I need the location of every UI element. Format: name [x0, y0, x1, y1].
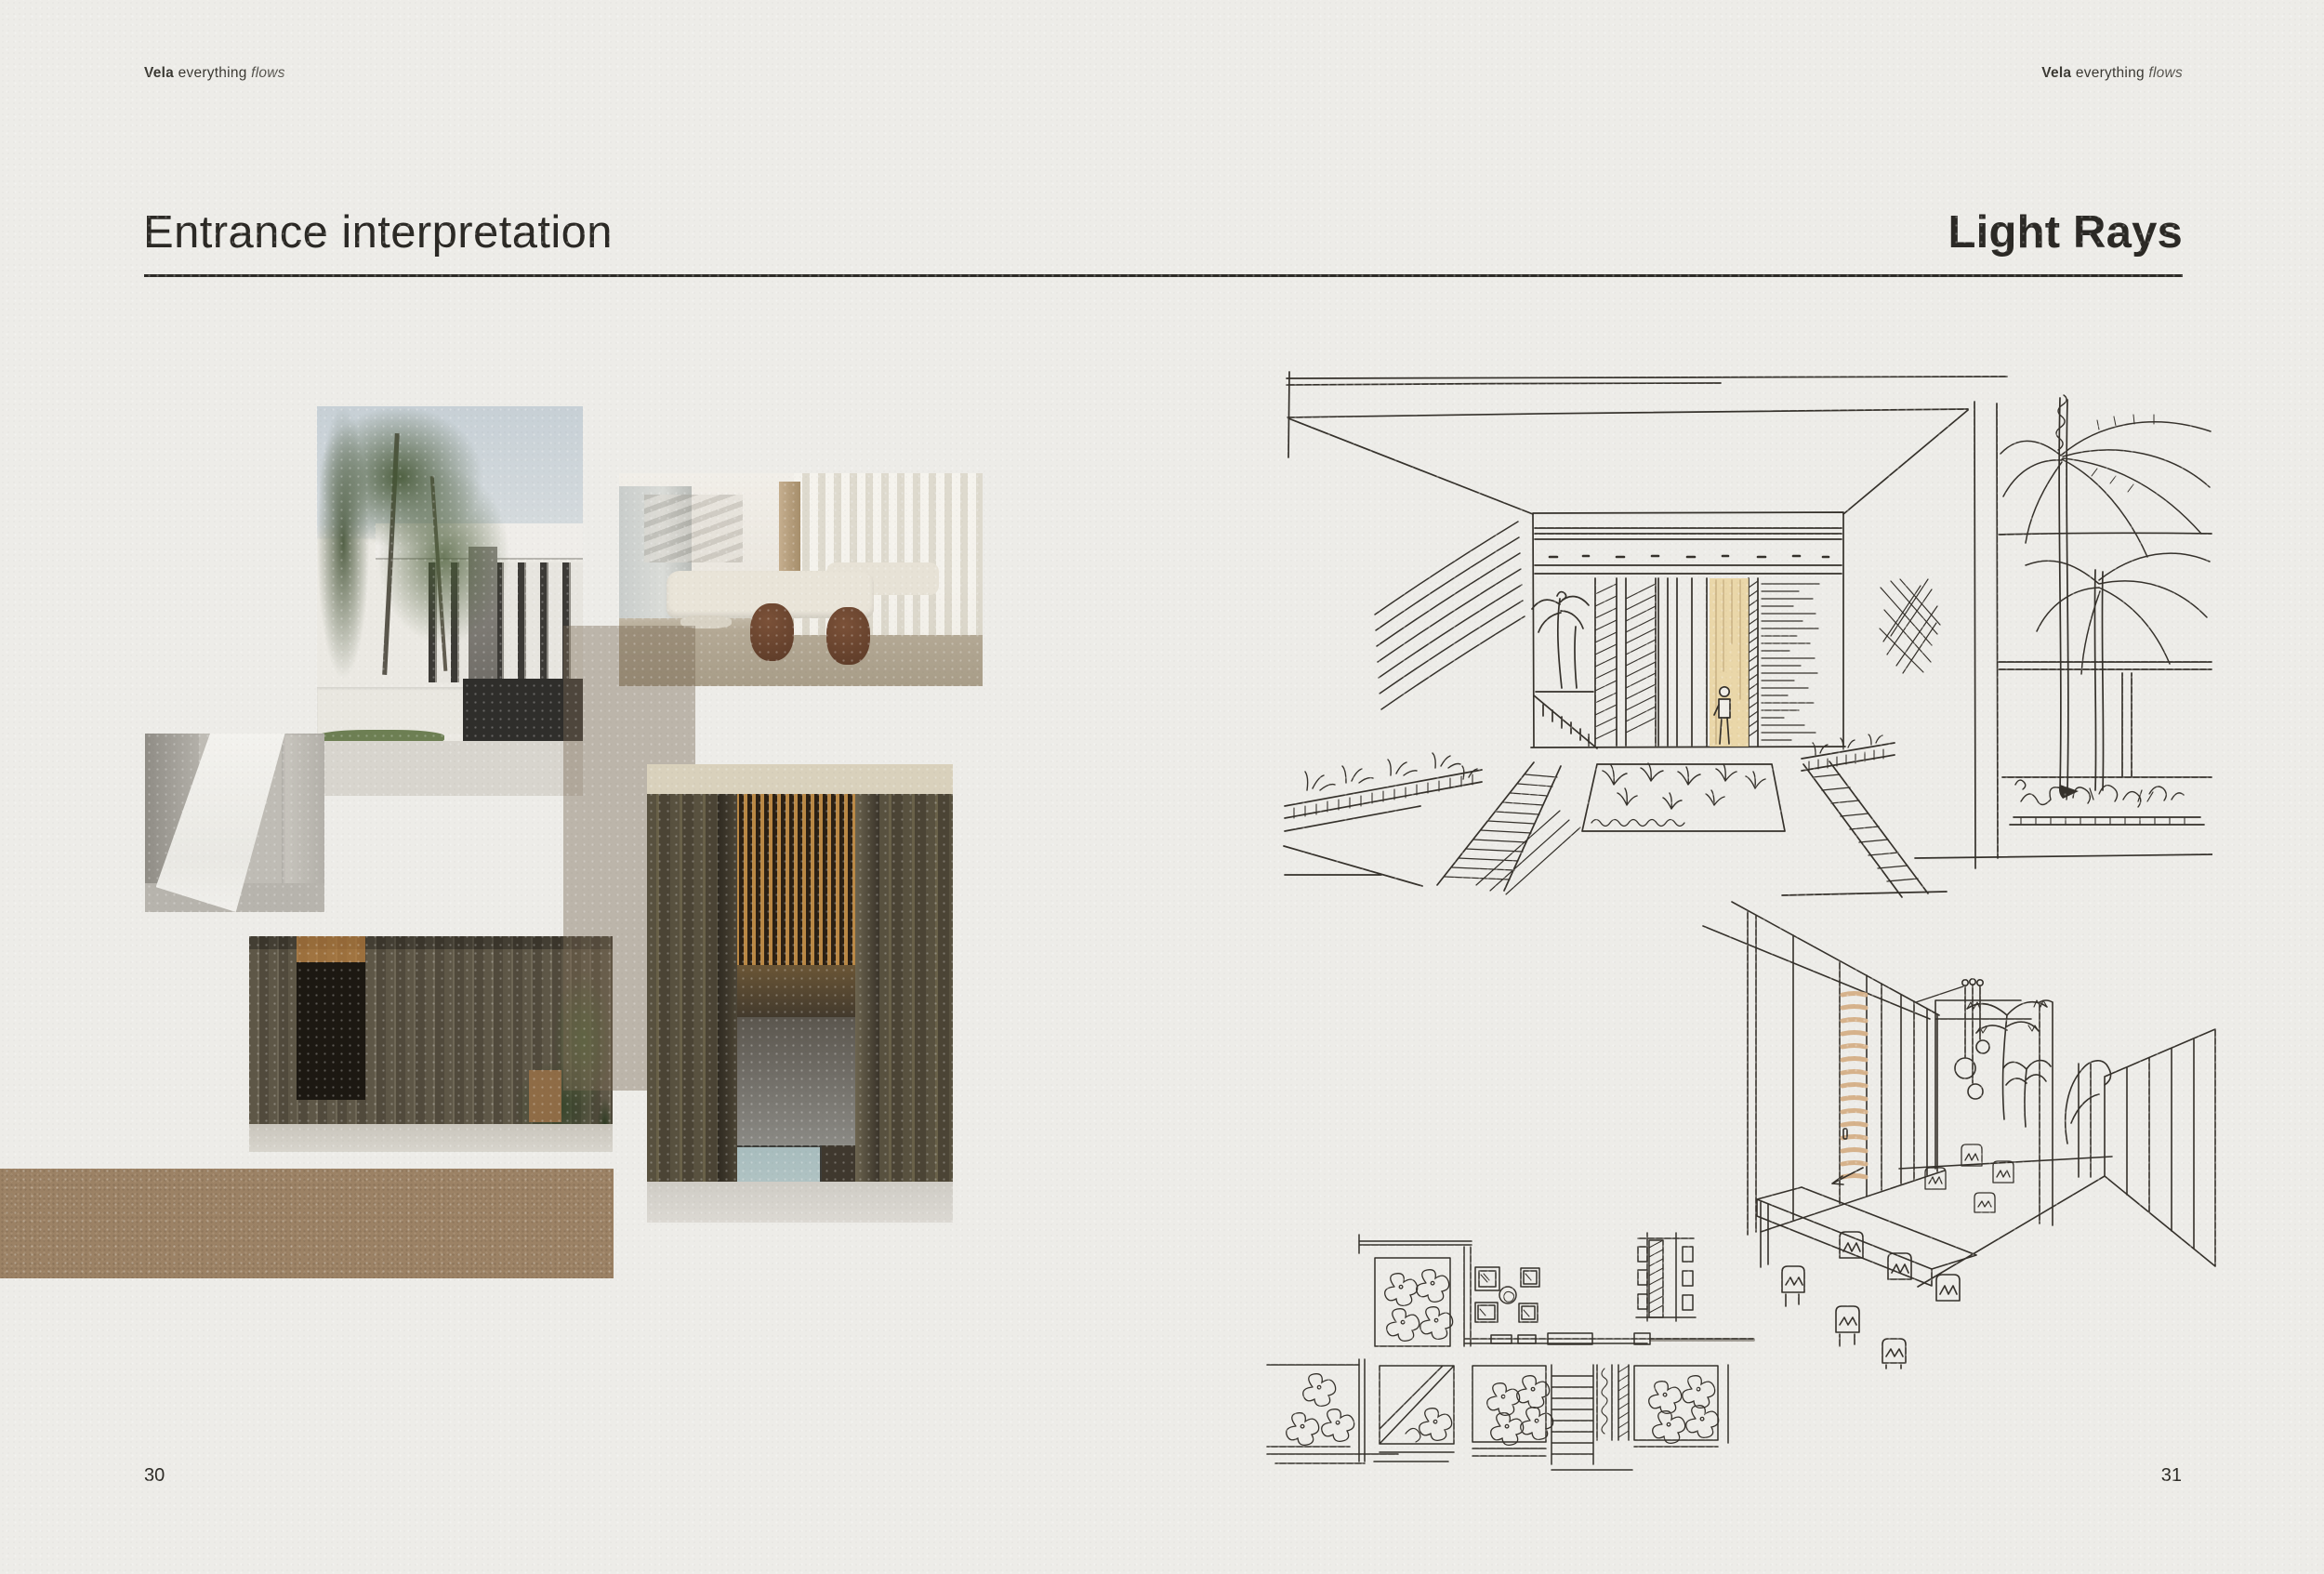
sketch-interior-perspective	[1699, 900, 2234, 1369]
pivot-door-leaf-right	[855, 794, 879, 1199]
photo-villa-palms	[317, 406, 583, 796]
heading-rule	[144, 274, 2183, 277]
photo-pivot-door	[647, 764, 953, 1223]
lounge-stair	[644, 495, 743, 562]
timber-forecourt	[249, 1124, 613, 1152]
timber-door-opening	[297, 936, 365, 1100]
lounge-barrel-table	[750, 603, 794, 661]
photo-concrete-light	[145, 734, 324, 912]
page-title-left: Entrance interpretation	[143, 210, 613, 256]
logo-word: everything	[178, 65, 247, 81]
palm-canopy	[317, 406, 535, 679]
villa-paving	[317, 741, 583, 796]
logo-word: everything	[2076, 65, 2145, 81]
timber-planter-box	[529, 1070, 561, 1122]
sketch-floor-plan	[1257, 1229, 1777, 1475]
logo-brand: Vela	[144, 65, 174, 81]
logo-word-italic: flows	[2148, 65, 2183, 81]
logo-brand: Vela	[2041, 65, 2071, 81]
villa-boundary-wall	[317, 687, 477, 734]
sketch-entrance-perspective	[1281, 364, 2212, 899]
pivot-interior	[735, 1017, 864, 1145]
pivot-entry-corridor	[735, 794, 864, 1223]
pivot-fascia	[647, 764, 953, 794]
brochure-spread: Vela everything flows Vela everything fl…	[0, 0, 2324, 1574]
pivot-slatted-ceiling	[735, 794, 864, 965]
logo-left: Vela everything flows	[144, 65, 285, 82]
pivot-glow	[735, 965, 864, 1016]
logo-word-italic: flows	[251, 65, 285, 81]
lounge-barrel-table	[826, 607, 870, 665]
logo-right: Vela everything flows	[2041, 65, 2183, 82]
photo-timber-entrance	[249, 936, 613, 1152]
page-number-left: 30	[144, 1465, 165, 1487]
sketch-person-head	[1720, 687, 1729, 696]
pivot-door-leaf-left	[718, 794, 737, 1193]
page-title-right: Light Rays	[1948, 210, 2183, 256]
page-number-right: 31	[2161, 1465, 2182, 1487]
pivot-exterior-floor	[647, 1182, 953, 1223]
leather-material-swatch	[0, 1169, 614, 1278]
